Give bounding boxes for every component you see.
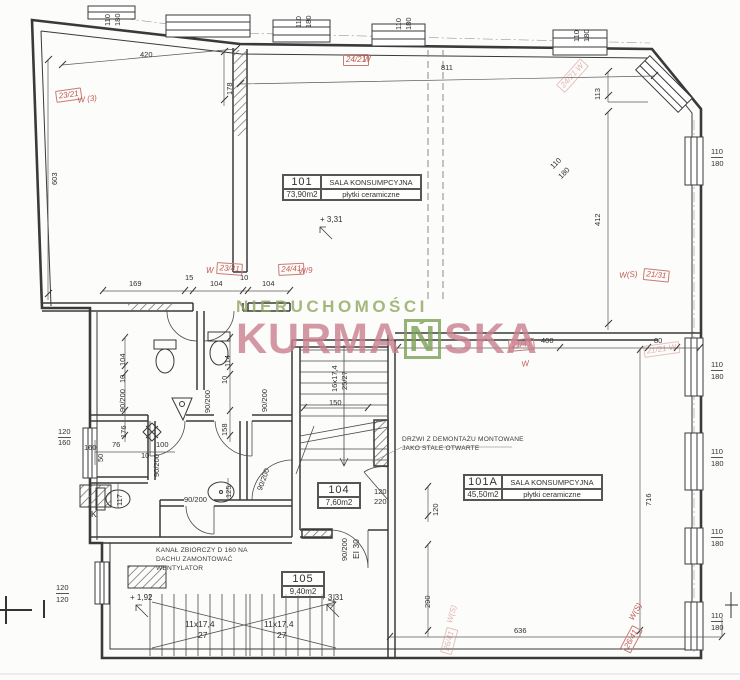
red-annotation: W/9 xyxy=(298,267,313,277)
watermark: NIERUCHOMOŚCI KURMA Ń SKA xyxy=(236,297,538,359)
dimension-label: 90/200 xyxy=(256,467,271,491)
dimension-label: 104 xyxy=(119,353,127,366)
dimension-label: 290 xyxy=(424,595,432,608)
dimension-label: 178 xyxy=(226,82,234,95)
level-mark: + 1,92 xyxy=(130,593,152,602)
dimension-label: 110 xyxy=(104,14,112,26)
dimension-label: 15 xyxy=(185,274,193,282)
red-annotation: W xyxy=(206,267,214,275)
dimension-label: 176 xyxy=(120,425,128,438)
room-101a-number: 101A xyxy=(464,475,502,489)
dimension-label: 104 xyxy=(262,280,275,288)
room-101-number: 101 xyxy=(283,175,321,189)
dimension-label: 104 xyxy=(210,280,223,288)
dimension-label: 110 xyxy=(573,30,581,42)
dimension-label: 220 xyxy=(374,498,387,506)
door-note-line1: DRZWI Z DEMONTAŻU MONTOWANE xyxy=(402,436,524,445)
dimension-label: 180 xyxy=(305,15,313,28)
dimension-label: 110 xyxy=(711,612,723,622)
room-101a-name: SALA KONSUMPCYJNA xyxy=(502,475,602,489)
room-101a-area: 45,50m2 xyxy=(464,489,502,500)
dimension-label: 11x17,4 xyxy=(264,620,294,629)
dimension-label: 180 xyxy=(711,540,724,548)
dimension-label: 110 xyxy=(295,16,303,28)
dimension-label: K xyxy=(91,510,97,519)
room-101a-floor: płytki ceramiczne xyxy=(502,489,602,500)
dimension-label: 169 xyxy=(129,280,142,288)
dimension-label: 110 xyxy=(711,148,723,158)
room-104-label: 104 7,60m2 xyxy=(317,482,361,509)
red-annotation: 26/41 xyxy=(620,625,643,654)
dimension-label: 90/200 xyxy=(341,538,349,561)
room-101-area: 73,90m2 xyxy=(283,189,321,200)
dimension-label: 412 xyxy=(594,213,602,226)
room-101a-label: 101A SALA KONSUMPCYJNA 45,50m2 płytki ce… xyxy=(463,474,603,501)
duct-note-line3: WENTYLATOR xyxy=(156,565,248,574)
dimension-label: 603 xyxy=(51,172,59,185)
dimension-label: 160 xyxy=(84,444,97,452)
watermark-ska: SKA xyxy=(444,321,538,358)
dimension-label: 50 xyxy=(97,454,105,462)
level-mark: + 3,31 xyxy=(320,215,342,224)
dimension-label: 110 xyxy=(711,448,723,458)
dimension-label: 90/200 xyxy=(184,496,207,504)
dimension-label: 16x17,4 xyxy=(331,365,339,392)
dimension-label: 150 xyxy=(329,399,342,407)
dimension-label: 180 xyxy=(711,373,724,381)
dimension-label: 90/200 xyxy=(153,454,161,477)
floor-plan-page: 4208111136031784121691510410104400801501… xyxy=(0,0,740,680)
dimension-label: 25/27 xyxy=(341,371,349,390)
dimension-label: 160 xyxy=(58,439,71,447)
room-105-number: 105 xyxy=(282,572,324,586)
dimension-label: EI 30 xyxy=(352,539,361,559)
dimension-label: 110 xyxy=(395,18,403,30)
dimension-label: 811 xyxy=(441,64,453,72)
dimension-label: 110 xyxy=(711,361,723,371)
room-105-area: 9,40m2 xyxy=(282,586,324,597)
dimension-label: 120 xyxy=(58,428,71,438)
dimension-label: 180 xyxy=(711,624,724,632)
duct-note-line2: DACHU ZAMONTOWAĆ xyxy=(156,556,248,565)
dimension-label: 400 xyxy=(541,337,554,345)
dimension-label: 180 xyxy=(114,13,122,26)
dimension-label: 120 xyxy=(56,584,69,594)
dimension-label: 10 xyxy=(141,452,149,460)
red-annotation: 21/31 xyxy=(643,268,670,283)
dimension-label: 90/200 xyxy=(261,389,269,412)
red-annotation: 26/41 xyxy=(440,627,459,655)
dimension-label: 90/200 xyxy=(204,390,212,413)
dimension-label: 180 xyxy=(583,29,591,42)
door-note: DRZWI Z DEMONTAŻU MONTOWANE JAKO STALE O… xyxy=(402,436,524,454)
watermark-line1: NIERUCHOMOŚCI xyxy=(236,297,538,317)
watermark-kurma: KURMA xyxy=(236,321,401,358)
dimension-label: 76 xyxy=(112,441,120,449)
dimension-label: 180 xyxy=(711,460,724,468)
dimension-label: 180 xyxy=(557,166,571,180)
dimension-label: 716 xyxy=(645,493,653,506)
red-annotation: 23/41 xyxy=(216,262,243,276)
room-101-name: SALA KONSUMPCYJNA xyxy=(321,175,421,189)
red-annotation: W(S) xyxy=(628,602,644,622)
dimension-label: 120 xyxy=(432,503,440,516)
dimension-label: 158 xyxy=(221,423,229,436)
red-annotation: W xyxy=(363,56,371,64)
dimension-label: 117 xyxy=(116,494,124,506)
dimension-label: 110 xyxy=(711,528,723,538)
red-annotation: W (3) xyxy=(77,94,98,105)
dimension-label: 90/200 xyxy=(119,389,127,412)
red-annotation: W(S) xyxy=(446,604,459,624)
red-annotation: W(S) xyxy=(619,270,638,280)
dimension-label: 636 xyxy=(514,627,527,635)
dimension-label: 27 xyxy=(198,631,207,640)
dimension-label: 11x17,4 xyxy=(185,620,215,629)
dimension-label: 420 xyxy=(140,51,153,59)
dimension-label: 114 xyxy=(224,355,232,367)
dimension-label: 180 xyxy=(405,17,413,30)
watermark-n-boxed: Ń xyxy=(404,319,441,359)
duct-note: KANAŁ ZBIORCZY D 160 NA DACHU ZAMONTOWAĆ… xyxy=(156,547,248,574)
dimension-label: 125 xyxy=(225,485,233,498)
room-101-label: 101 SALA KONSUMPCYJNA 73,90m2 płytki cer… xyxy=(282,174,422,201)
red-annotation: 24/21 W xyxy=(556,58,589,93)
dimension-label: 100 xyxy=(156,441,169,449)
dimension-label: 10 xyxy=(119,375,127,383)
door-note-line2: JAKO STALE OTWARTE xyxy=(402,445,524,454)
dimension-label: 113 xyxy=(594,88,602,100)
red-annotation: 21/21 W xyxy=(643,341,680,358)
dimension-label: 120 xyxy=(56,596,69,604)
dimension-label: 180 xyxy=(711,160,724,168)
room-105-label: 105 9,40m2 xyxy=(281,571,325,598)
dimension-label: 27 xyxy=(277,631,286,640)
room-104-number: 104 xyxy=(318,483,360,497)
dimension-label: 10 xyxy=(221,376,229,384)
dimension-label: 120 xyxy=(374,488,387,496)
watermark-line2: KURMA Ń SKA xyxy=(236,319,538,359)
duct-note-line1: KANAŁ ZBIORCZY D 160 NA xyxy=(156,547,248,556)
room-101-floor: płytki ceramiczne xyxy=(321,189,421,200)
room-104-area: 7,60m2 xyxy=(318,497,360,508)
